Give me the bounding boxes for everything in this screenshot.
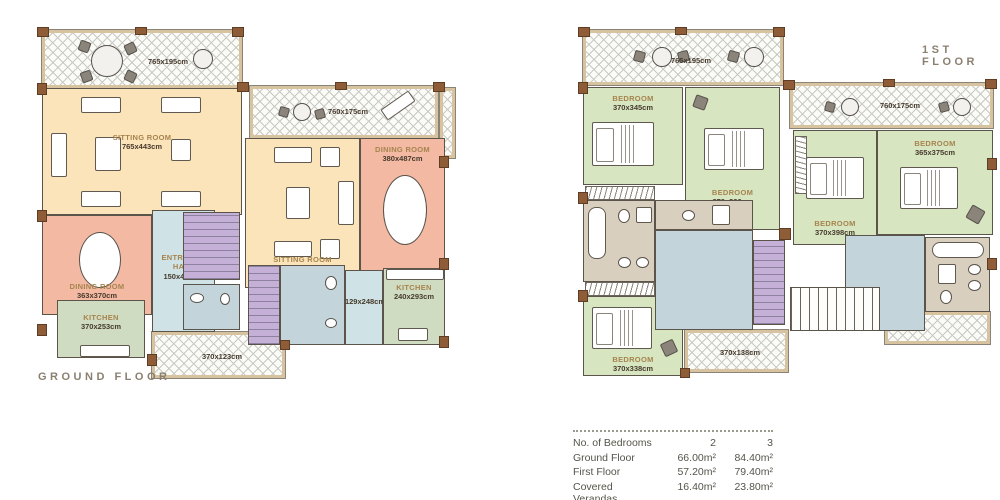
room-name-label: KITCHEN (384, 283, 444, 292)
room-dims-label: 370x345cm (584, 103, 682, 112)
room-dims-label: 380x487cm (361, 154, 444, 163)
sofa-icon (81, 97, 121, 113)
sofa-icon (51, 133, 67, 177)
veranda-dims-label: 765x195cm (133, 57, 203, 66)
stairs-gf-left (183, 212, 240, 280)
row-value-3bed: 23.80m² (716, 481, 773, 493)
sink-icon (968, 280, 981, 291)
hall-gf-right: 129x248cm (345, 270, 383, 345)
room-name-label: BEDROOM (686, 188, 779, 197)
coffee-table-icon (286, 187, 310, 219)
room-dims-label: 240x293cm (384, 292, 444, 301)
hall-ff-left (655, 230, 753, 330)
veranda-ff-bottom-left: 370x138cm (685, 330, 788, 372)
shower-icon (938, 264, 956, 284)
bed-icon (592, 122, 654, 166)
chair-icon (692, 94, 709, 111)
toilet-icon (220, 293, 230, 305)
patio-chair-icon (278, 106, 290, 118)
bed-icon (806, 157, 864, 199)
sink-icon (968, 264, 981, 275)
chair-icon (965, 204, 985, 224)
kitchen-counter-icon (80, 345, 130, 357)
patio-chair-icon (633, 50, 646, 63)
armchair-icon (320, 147, 340, 167)
toilet-icon (325, 318, 337, 328)
sofa-icon (161, 97, 201, 113)
chair-icon (660, 339, 679, 358)
patio-table-icon (91, 45, 123, 77)
sink-icon (190, 293, 204, 303)
patio-table-icon (841, 98, 859, 116)
shower-icon (636, 207, 652, 223)
toilet-icon (682, 210, 695, 221)
patio-chair-icon (77, 39, 91, 53)
wardrobe-icon (585, 186, 655, 200)
patio-chair-icon (824, 101, 836, 113)
patio-table-icon (293, 103, 311, 121)
room-name-label: DINING ROOM (361, 145, 444, 154)
patio-chair-icon (123, 69, 138, 84)
spec-table: No. of Bedrooms 2 3 Ground Floor 66.00m²… (573, 430, 773, 495)
row-value-2bed: 16.40m² (659, 481, 716, 493)
bathroom-ff-left (583, 200, 655, 282)
first-floor-plan: 765x195cm 760x175cm 370x138cm BEDROOM 37… (575, 28, 995, 376)
table-row: Covered Verandas 16.40m² 23.80m² (573, 481, 773, 496)
room-name-label: KITCHEN (58, 313, 144, 322)
room-bedroom-right-2: BEDROOM 365x375cm (877, 130, 993, 235)
sink-icon (636, 257, 649, 268)
row-label: No. of Bedrooms (573, 437, 659, 449)
armchair-icon (171, 139, 191, 161)
toilet-icon (618, 209, 630, 223)
bed-icon (592, 307, 652, 349)
room-name-label: BEDROOM (794, 219, 876, 228)
first-floor-title: 1ST FLOOR (922, 44, 1000, 68)
room-sitting-left: SITTING ROOM 765x443cm (42, 88, 242, 215)
patio-lounger-icon (380, 90, 415, 120)
bed-icon (900, 167, 958, 209)
row-value-2bed: 66.00m² (659, 452, 716, 464)
sink-icon (325, 276, 337, 290)
room-dims-label: 370x338cm (584, 364, 682, 373)
floorplan-page: 765x195cm 760x175cm 370x123cm SITTING RO… (0, 0, 1000, 500)
shower-icon (712, 205, 730, 225)
row-value-3bed: 3 (716, 437, 773, 449)
patio-chair-icon (938, 101, 950, 113)
veranda-ff-top-left: 765x195cm (583, 30, 783, 85)
room-bedroom-top-left: BEDROOM 370x345cm (583, 87, 683, 185)
row-value-2bed: 2 (659, 437, 716, 449)
bathtub-icon (588, 207, 606, 259)
patio-chair-icon (727, 50, 740, 63)
room-dims-label: 365x375cm (878, 148, 992, 157)
patio-chair-icon (123, 41, 138, 56)
veranda-dims-label: 765x195cm (656, 56, 726, 65)
table-row: Ground Floor 66.00m² 84.40m² (573, 452, 773, 467)
toilet-icon (940, 290, 952, 304)
sofa-icon (274, 241, 312, 257)
room-name-label: SITTING ROOM (43, 133, 241, 142)
row-value-2bed: 57.20m² (659, 466, 716, 478)
row-value-3bed: 79.40m² (716, 466, 773, 478)
bathroom-gf-left (183, 284, 240, 330)
wardrobe-icon (795, 136, 807, 194)
kitchen-sink-icon (398, 328, 428, 341)
room-kitchen-left: KITCHEN 370x253cm (57, 300, 145, 358)
dining-table-icon (79, 232, 121, 288)
ground-floor-plan: 765x195cm 760x175cm 370x123cm SITTING RO… (35, 28, 455, 380)
sofa-icon (274, 147, 312, 163)
bed-icon (704, 128, 764, 170)
bathtub-icon (932, 242, 984, 258)
veranda-dims-label: 760x175cm (313, 107, 383, 116)
veranda-dims-label: 760x175cm (865, 101, 935, 110)
table-row: First Floor 57.20m² 79.40m² (573, 466, 773, 481)
sink-icon (618, 257, 631, 268)
kitchen-counter-icon (386, 269, 444, 280)
table-divider (573, 430, 773, 432)
armchair-icon (320, 239, 340, 259)
sofa-icon (81, 191, 121, 207)
row-label: First Floor (573, 466, 659, 478)
wc-ff-left (655, 200, 753, 230)
sofa-icon (161, 191, 201, 207)
veranda-ff-top-right: 760x175cm (790, 83, 993, 128)
room-kitchen-right: KITCHEN 240x293cm (383, 268, 445, 345)
sofa-icon (338, 181, 354, 225)
row-label: Covered Verandas (573, 481, 659, 500)
row-label: Ground Floor (573, 452, 659, 464)
veranda-dims-label: 370x138cm (705, 348, 775, 357)
veranda-gf-top-right: 760x175cm (250, 86, 438, 138)
room-dims-label: 765x443cm (43, 142, 241, 151)
patio-table-icon (953, 98, 971, 116)
ground-floor-title: GROUND FLOOR (38, 371, 170, 383)
coffee-table-icon (95, 137, 121, 171)
patio-chair-icon (79, 69, 93, 83)
veranda-gf-top-left: 765x195cm (42, 30, 242, 88)
row-value-3bed: 84.40m² (716, 452, 773, 464)
wardrobe-icon (585, 282, 655, 296)
stairs-gf-right (248, 265, 280, 345)
stairs-ff-left (753, 240, 785, 325)
veranda-dims-label: 370x123cm (187, 352, 257, 361)
table-row: No. of Bedrooms 2 3 (573, 437, 773, 452)
bathroom-ff-right (925, 237, 990, 312)
patio-table-icon (744, 47, 764, 67)
dining-table-icon (383, 175, 427, 245)
room-dims-label: 370x253cm (58, 322, 144, 331)
room-name-label: BEDROOM (584, 94, 682, 103)
stairs-ff-right (790, 287, 880, 331)
room-name-label: BEDROOM (878, 139, 992, 148)
